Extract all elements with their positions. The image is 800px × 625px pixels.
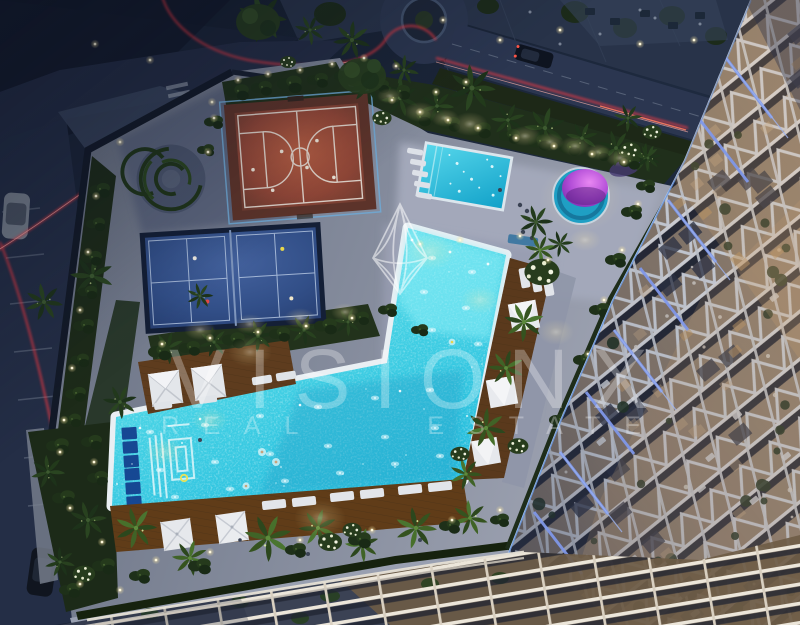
svg-text:REAL ESTATE: REAL ESTATE	[161, 412, 665, 440]
